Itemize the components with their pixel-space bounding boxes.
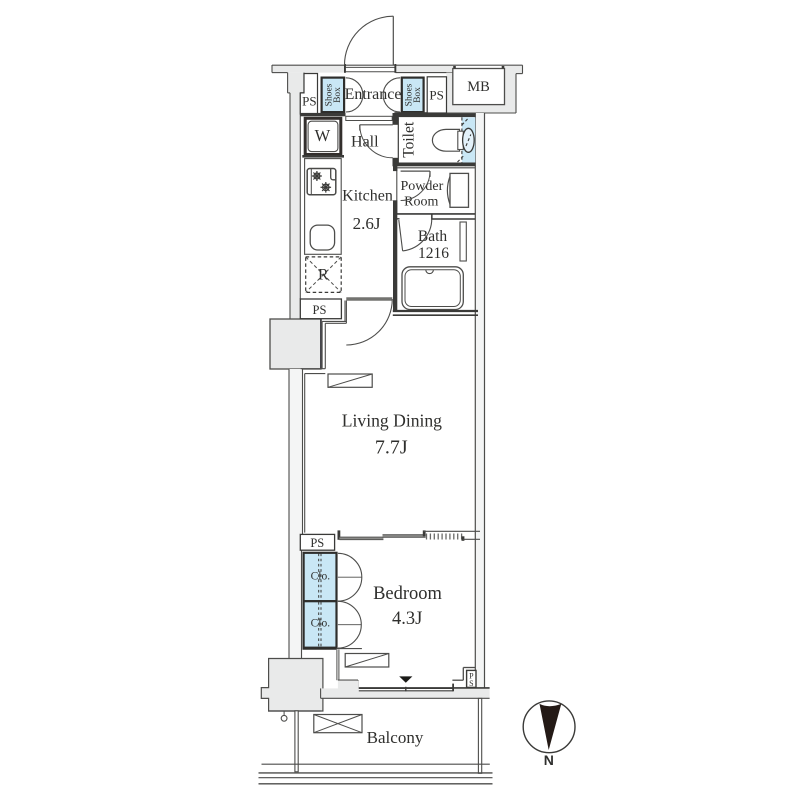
svg-text:Box: Box [413,87,423,103]
svg-text:Room: Room [404,195,438,210]
svg-text:W: W [315,126,331,145]
svg-text:4.3J: 4.3J [392,609,422,629]
svg-text:Clo.: Clo. [311,617,331,629]
svg-text:MB: MB [467,79,490,95]
svg-text:Living Dining: Living Dining [342,411,442,431]
svg-text:Clo.: Clo. [311,570,331,582]
svg-text:N: N [544,752,554,768]
svg-text:PS: PS [429,87,443,102]
svg-text:PS: PS [310,536,324,550]
svg-text:Entrance: Entrance [345,86,402,103]
svg-text:PS: PS [313,303,327,317]
svg-text:Toilet: Toilet [400,121,417,158]
svg-text:R: R [318,267,329,284]
svg-text:Box: Box [333,87,343,103]
svg-text:1216: 1216 [418,245,449,262]
svg-text:Powder: Powder [401,179,444,194]
svg-text:7.7J: 7.7J [375,437,408,459]
svg-text:S: S [469,679,473,688]
svg-text:2.6J: 2.6J [353,214,381,233]
svg-text:Hall: Hall [351,133,379,150]
svg-text:Kitchen: Kitchen [342,187,393,204]
svg-text:PS: PS [302,94,316,109]
svg-text:Balcony: Balcony [367,728,424,747]
svg-text:Bedroom: Bedroom [373,584,442,604]
svg-text:Bath: Bath [418,228,448,245]
